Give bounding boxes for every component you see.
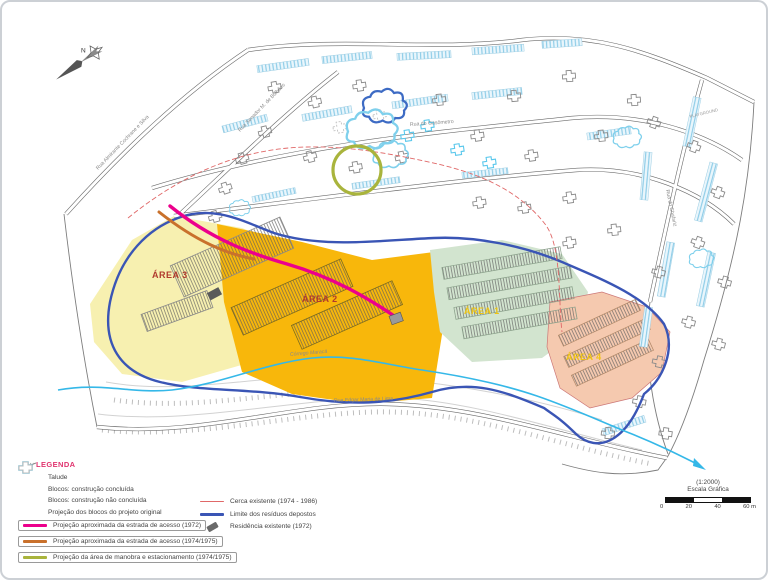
legend-item-label: Residência existente (1972) <box>230 523 312 530</box>
north-arrow-icon: N <box>49 37 106 86</box>
residence-icon <box>200 524 224 530</box>
area4-label: ÁREA 4 <box>566 352 602 362</box>
legend-item-label: Blocos: construção concluída <box>48 486 134 493</box>
legend-item-bloco-concluido: Blocos: construção concluída <box>18 486 268 493</box>
parking-strip <box>397 51 451 61</box>
street-label: Rua do Gasômetro <box>410 119 454 128</box>
legend-item-cerca: Cerca existente (1974 - 1986) <box>200 498 380 505</box>
parking-strip <box>694 162 717 222</box>
legend-item-label: Projeção dos blocos do projeto original <box>48 509 162 516</box>
building-block <box>470 129 484 142</box>
building-block <box>690 235 706 250</box>
scale-caption: Escala Gráfica <box>650 486 766 493</box>
legend-right-column: Cerca existente (1974 - 1986) Limite dos… <box>200 498 380 536</box>
scale-tick: 20 <box>686 504 692 510</box>
parking-strip <box>257 58 309 72</box>
street-label: Rua Senador M. de Bulhões <box>237 82 287 133</box>
scale-bar <box>665 497 751 503</box>
legend-item-label: Limite dos resíduos depostos <box>230 511 316 518</box>
legend-item-manobra: Projeção da área de manobra e estacionam… <box>18 552 237 563</box>
parking-strip <box>472 87 522 99</box>
scale-ticks: 0 20 40 60 m <box>660 504 756 510</box>
area3-label: ÁREA 3 <box>152 270 188 280</box>
parking-strip <box>392 94 448 109</box>
building-block <box>472 196 486 209</box>
blue-line-icon <box>200 513 224 516</box>
area2-label: ÁREA 2 <box>302 294 338 304</box>
building-block <box>562 191 576 204</box>
building-block <box>711 337 726 351</box>
parking-strip <box>587 127 632 140</box>
olive-line-icon <box>23 556 47 559</box>
parking-strip <box>302 106 352 122</box>
parking-strip <box>602 415 646 435</box>
parking-strip <box>322 51 372 63</box>
parking-strip <box>640 152 652 201</box>
area1-label: ÁREA 1 <box>464 306 500 316</box>
legend-title: LEGENDA <box>36 460 268 469</box>
scale-ratio: (1:2000) <box>650 479 766 486</box>
building-block <box>562 236 576 249</box>
orange-line-icon <box>23 540 47 543</box>
legend-item-limite: Limite dos resíduos depostos <box>200 511 380 518</box>
parking-strip <box>683 97 701 148</box>
site-plan-page: Córrego Maracá ÁREA 3 ÁREA 2 ÁREA 1 ÁREA… <box>0 0 768 580</box>
legend-item-label: Talude <box>48 474 67 481</box>
legend-item-talude: Talude <box>18 474 268 481</box>
building-block <box>217 181 233 195</box>
scale-tick: 60 m <box>743 504 756 510</box>
building-block <box>332 121 347 134</box>
legend-item-label: Projeção aproximada da estrada de acesso… <box>53 538 218 545</box>
street-label: Rua Almirante Cochrane e Silva <box>95 114 150 171</box>
building-block <box>717 275 732 289</box>
magenta-line-icon <box>23 524 47 527</box>
graphic-scale: (1:2000) Escala Gráfica 0 20 40 60 m <box>650 479 766 510</box>
scale-tick: 40 <box>714 504 720 510</box>
building-block <box>524 149 538 162</box>
building-block <box>450 143 464 156</box>
building-block <box>562 70 576 82</box>
legend-item-residencia: Residência existente (1972) <box>200 523 380 530</box>
legend-item-label: Projeção da área de manobra e estacionam… <box>53 554 232 561</box>
building-block <box>627 94 641 106</box>
north-label: N <box>81 47 86 54</box>
red-line-icon <box>200 501 224 502</box>
building-block <box>681 315 696 329</box>
building-block <box>352 79 366 92</box>
legend-item-estrada-1974: Projeção aproximada da estrada de acesso… <box>18 536 223 547</box>
building-block <box>482 156 496 169</box>
legend-item-estrada-1972: Projeção aproximada da estrada de acesso… <box>18 520 206 531</box>
scale-tick: 0 <box>660 504 663 510</box>
building-block <box>607 224 621 236</box>
legend-item-label: Projeção aproximada da estrada de acesso… <box>53 522 201 529</box>
stream-arrow-icon <box>693 458 706 470</box>
building-block <box>658 427 672 440</box>
building-block <box>348 161 363 174</box>
building-block <box>710 185 726 200</box>
legend-item-label: Cerca existente (1974 - 1986) <box>230 498 317 505</box>
legend-item-label: Blocos: construção não concluída <box>48 497 147 504</box>
